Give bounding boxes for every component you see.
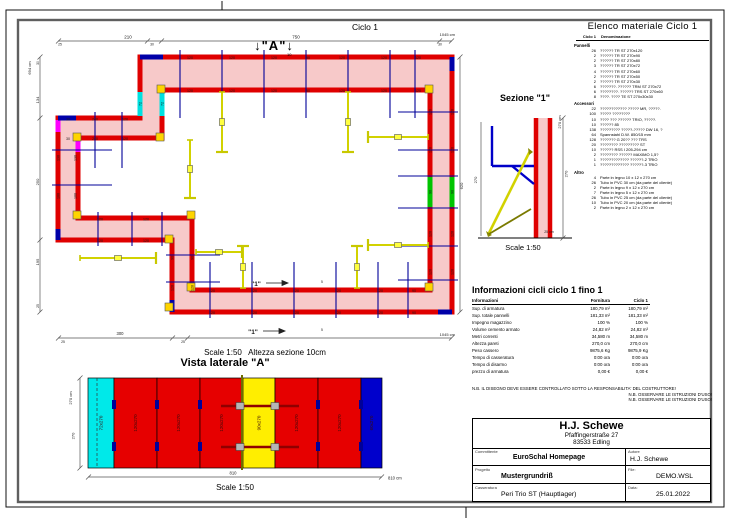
file-cell: File: DEMO.WSL	[625, 466, 711, 483]
side-view-panels: 72x270120x270120x270120x27090x270120x270…	[88, 378, 382, 468]
plan-label: 72	[139, 102, 143, 106]
push-pull-prop	[342, 92, 354, 152]
plan-label: 90	[412, 289, 416, 293]
cycle-info-row: Sup. totale pannelli181,33 m²181,33 m²	[472, 312, 650, 319]
side-view-panel: 120x270	[318, 378, 361, 468]
plan-label: 90	[451, 190, 455, 194]
plan-label: 130	[74, 155, 78, 161]
side-view-label: 810	[230, 471, 238, 476]
plan-label: 130	[57, 155, 61, 161]
plan-label: 90	[171, 256, 175, 260]
plan-label: 120	[97, 218, 103, 222]
cycle-info-title: Informazioni cicli ciclo 1 fino 1	[472, 285, 650, 295]
panel-size-label: 120x270	[219, 414, 224, 432]
cycle-info-cell: 100 %	[610, 319, 648, 326]
push-pull-prop	[351, 246, 363, 288]
section-push-pull-prop	[489, 151, 530, 233]
plan-label: 120	[335, 311, 341, 315]
side-view-panel: 90x270	[243, 378, 275, 468]
data-cell: Data: 25.01.2022	[625, 484, 711, 502]
prop-coupler	[115, 256, 122, 261]
section-label: 270 cm	[557, 115, 562, 129]
company-address-2: 83533 Edling	[473, 439, 710, 446]
plan-label: 240	[92, 118, 98, 122]
tie-plate	[359, 442, 363, 451]
note-line-3: N.B. OSSERVARE LE ISTRUZIONI D'USO!	[472, 397, 712, 403]
plan-label: 1045 cm	[440, 32, 456, 37]
plan-label: 90	[412, 311, 416, 315]
cycle-info-row: Volume cemento armato24,82 m³24,82 m³	[472, 326, 650, 333]
plan-label: 120	[143, 239, 149, 243]
tie-plate	[155, 400, 159, 409]
plan-label: 25	[58, 43, 62, 47]
push-pull-prop	[184, 140, 196, 198]
prop-coupler	[346, 119, 351, 126]
tie-plate	[316, 400, 320, 409]
side-view-label: 810 cm	[388, 476, 402, 481]
plan-label: 120	[451, 109, 455, 115]
panel-size-label: 120x270	[133, 414, 138, 432]
prop-coupler	[188, 166, 193, 173]
material-item: 2Parte in legno 2 x 12 x 270 cm	[576, 205, 709, 210]
cycle-info-cell: 270,0 cm	[610, 340, 648, 347]
file-value: DEMO.WSL	[656, 473, 693, 480]
section-label: 270	[564, 170, 569, 177]
tie-plate	[316, 442, 320, 451]
side-view-panel: 120x270	[275, 378, 318, 468]
side-view-panel: 120x270	[157, 378, 200, 468]
plan-label: 120	[339, 89, 345, 93]
cycle-info-h2: Ciclo 1	[610, 297, 648, 304]
cycle-info-cell: 100 %	[568, 319, 610, 326]
cycle-info-cell: 181,33 m²	[568, 312, 610, 319]
plan-special-panels	[58, 57, 452, 312]
plan-label: 120	[429, 231, 433, 237]
plan-outer-formwork	[58, 57, 452, 312]
title-block-row-committente: Committente EuroSchal Homepage Autore H.…	[473, 448, 710, 466]
push-pull-prop	[196, 246, 242, 258]
cycle-info-cell: 0:00 ora	[610, 354, 648, 361]
tie-plate	[155, 442, 159, 451]
notes: N.B. IL DISEGNO DEVE ESSERE CONTROLLATO …	[472, 386, 712, 403]
cycle-info-cell: Peso cassero	[472, 347, 568, 354]
material-item: 1????????????? ??????-3 TRIO	[576, 162, 709, 167]
plan-label: 5	[321, 280, 323, 284]
cycle-info-cell: 24,82 m³	[568, 326, 610, 333]
plan-scale-note: Scale 1:50 Altezza sezione 10cm	[150, 348, 380, 357]
autore-cell: Autore H.J. Schewe	[625, 448, 711, 465]
plan-label: 120	[451, 147, 455, 153]
cycle-info-row: Peso cassero9875,6 Kg9875,9 Kg	[472, 347, 650, 354]
plan-label: 620	[459, 182, 464, 189]
plan-label: 134	[35, 96, 40, 103]
side-view-panel: 72x270	[88, 378, 114, 468]
plan-label: 120	[339, 56, 345, 60]
progetto-value: Mustergrundriß	[501, 473, 553, 480]
cycle-info-cell: 181,33 m²	[610, 312, 648, 319]
plan-label: 30	[36, 61, 40, 65]
push-pull-prop	[368, 239, 428, 251]
cycle-info-cell: 0,00 €	[568, 368, 610, 375]
prop-coupler	[241, 264, 246, 271]
plan-label: 120	[429, 109, 433, 115]
plan-label: 120	[451, 269, 455, 275]
plan-label: 120	[293, 311, 299, 315]
plan-label: 120	[429, 147, 433, 153]
plan-label: 120	[335, 289, 341, 293]
plan-label: "1"	[248, 329, 258, 336]
cycle-info-cell: Impegno magazzino	[472, 319, 568, 326]
side-view: 72x270120x270120x270120x27090x270120x270…	[68, 375, 402, 481]
plan-label: 120	[187, 56, 193, 60]
plan-label: 90	[429, 190, 433, 194]
plan-label: 120	[415, 56, 421, 60]
plan-label: 120	[191, 285, 195, 291]
panel-size-label: 120x270	[337, 414, 342, 432]
plan-label: 100	[74, 193, 78, 199]
plan-label: 25	[36, 304, 40, 308]
cycle-info-cell: Metri correnti	[472, 333, 568, 340]
cycle-info-h1: Fornitura	[568, 297, 610, 304]
cycle-info-row: Metri correnti34,580 m34,580 m	[472, 333, 650, 340]
title-block: H.J. Schewe Pfaffingerstraße 27 83533 Ed…	[472, 418, 711, 502]
view-marker-a: ↓"A"↓	[246, 38, 302, 53]
material-list-body: Pannelli26?????? TR ST 270x1202?????? TR…	[576, 43, 709, 210]
push-pull-prop	[368, 131, 428, 143]
drawing-sheet: { "page": { "plan_title": "Ciclo 1", "ma…	[0, 0, 730, 519]
cycle-info-row: Tempo di casseratura0:00 ora0:00 ora	[472, 354, 650, 361]
cycle-info-cell: prezzo di armatura	[472, 368, 568, 375]
prop-coupler	[355, 264, 360, 271]
plan-label: 30	[66, 137, 70, 141]
plan-title: Ciclo 1	[305, 22, 425, 32]
panel-size-label: 60x270	[369, 415, 374, 430]
plan-label: 120	[429, 269, 433, 275]
autore-label: Autore	[628, 449, 640, 454]
plan-label: 120	[251, 289, 257, 293]
progetto-label: Progetto	[475, 467, 490, 472]
plan-label: 72	[161, 102, 165, 106]
plan-label: "1"	[251, 281, 261, 288]
plan-label: 90	[191, 256, 195, 260]
plan-label: 90	[306, 89, 310, 93]
section-scale: Scale 1:50	[486, 243, 560, 252]
panel-size-label: 72x270	[99, 415, 104, 430]
panel-size-label: 120x270	[176, 414, 181, 432]
plan-label: 120	[143, 218, 149, 222]
material-col-ciclo: Ciclo 1	[576, 34, 596, 39]
side-view-panel: 60x270	[361, 378, 382, 468]
title-block-row-casseratura: Casseratura Peri Trio ST (Hauptlager) Da…	[473, 484, 710, 502]
plan-label: 25	[61, 340, 65, 344]
plan-label: 120	[97, 239, 103, 243]
cycle-info-cell: Tempo di disarmo	[472, 361, 568, 368]
cycle-info-cell: 180,79 m²	[610, 305, 648, 312]
side-view-panel: 120x270	[114, 378, 157, 468]
plan-label: 120	[171, 285, 175, 291]
data-value: 25.01.2022	[656, 491, 690, 498]
view-marker-a-sub: 10	[287, 52, 291, 57]
prop-coupler	[216, 250, 223, 255]
title-block-company-cell: H.J. Schewe Pfaffingerstraße 27 83533 Ed…	[473, 419, 710, 449]
cycle-info-row: prezzo di armatura0,00 €0,00 €	[472, 368, 650, 375]
push-pull-prop	[80, 252, 156, 264]
cycle-info-cell: 0,00 €	[610, 368, 648, 375]
material-item-desc: Parte in legno 2 x 12 x 270 cm	[600, 205, 654, 210]
data-label: Data:	[628, 485, 638, 490]
title-block-row-progetto: Progetto Mustergrundriß File: DEMO.WSL	[473, 466, 710, 484]
company-name: H.J. Schewe	[473, 419, 710, 432]
cycle-info-cell: 24,82 m³	[610, 326, 648, 333]
plan-label: 120	[377, 311, 383, 315]
plan-label: 120	[293, 289, 299, 293]
cycle-info-cell: 9875,6 Kg	[568, 347, 610, 354]
tie-plate	[198, 442, 202, 451]
prop-coupler	[395, 243, 402, 248]
material-list-title: Elenco materiale Ciclo 1	[576, 21, 709, 32]
cycle-info: Informazioni cicli ciclo 1 fino 1 Inform…	[472, 285, 650, 375]
material-list-header: Ciclo 1 Denominazione	[576, 34, 709, 41]
tie-plate	[198, 400, 202, 409]
plan-label: 694 cm	[27, 61, 32, 75]
plan-label: 210	[124, 35, 132, 40]
section-view: 270270 cm27025 cm	[473, 115, 572, 241]
casseratura-label: Casseratura	[475, 485, 497, 490]
plan-label: 90	[306, 56, 310, 60]
cycle-info-h0: Informazioni	[472, 297, 568, 304]
plan-label: 120	[381, 89, 387, 93]
plan-label: 120	[271, 56, 277, 60]
side-view-panel: 120x270	[200, 378, 243, 468]
plan-label: 120	[187, 89, 193, 93]
material-col-denominazione: Denominazione	[601, 34, 631, 39]
prop-coupler	[395, 135, 402, 140]
cycle-info-cell: Altezza pareti	[472, 340, 568, 347]
material-item-desc: ????????????? ??????-3 TRIO	[600, 162, 658, 167]
plan-label: 100	[57, 193, 61, 199]
plan-label: 30	[150, 43, 154, 47]
material-item-qty: 2	[576, 205, 596, 210]
plan-label: 120	[451, 231, 455, 237]
side-view-label: 270	[71, 432, 76, 439]
cycle-info-cell: 180,79 m²	[568, 305, 610, 312]
side-view-label: 270 cm	[68, 391, 73, 405]
material-item-desc: ????. ???? TE ST 270x30x30	[600, 94, 653, 99]
plan-label: 30	[438, 43, 442, 47]
sideview-scale: Scale 1:50	[160, 483, 310, 492]
plan-label: 120	[122, 118, 128, 122]
cycle-info-body: Sup. di armatura180,79 m²180,79 m²Sup. t…	[472, 305, 650, 375]
plan-label: 120	[209, 311, 215, 315]
panel-size-label: 90x270	[257, 415, 262, 430]
cycle-info-header: Informazioni Fornitura Ciclo 1	[472, 297, 650, 305]
cycle-info-cell: 9875,9 Kg	[610, 347, 648, 354]
tie-plate	[112, 442, 116, 451]
cycle-info-cell: 270,0 cm	[568, 340, 610, 347]
section-title: Sezione "1"	[478, 93, 572, 103]
plan-label: 1045 cm	[440, 332, 456, 337]
company-address-1: Pfaffingerstraße 27	[473, 432, 710, 439]
cycle-info-row: Tempo di disarmo0:00 ora0:00 ora	[472, 361, 650, 368]
cycle-info-row: Impegno magazzino100 %100 %	[472, 319, 650, 326]
plan-label: 120	[229, 89, 235, 93]
cycle-info-cell: Sup. di armatura	[472, 305, 568, 312]
plan-label: 120	[251, 311, 257, 315]
cycle-info-cell: 0:00 ora	[568, 354, 610, 361]
plan-wall-fill	[58, 57, 452, 312]
material-list: Elenco materiale Ciclo 1 Ciclo 1 Denomin…	[576, 21, 709, 210]
autore-value: H.J. Schewe	[630, 456, 668, 463]
cycle-info-cell: 0:00 ora	[568, 361, 610, 368]
plan-label: 120	[415, 89, 421, 93]
material-item: 8????. ???? TE ST 270x30x30	[576, 94, 709, 99]
sideview-title: Vista laterale "A"	[120, 357, 330, 369]
cycle-info-cell: Volume cemento armato	[472, 326, 568, 333]
plan-label: 240	[92, 137, 98, 141]
plan-label: 120	[271, 89, 277, 93]
section-label: 25 cm	[544, 230, 554, 234]
prop-coupler	[220, 119, 225, 126]
cycle-info-cell: 34,580 m	[568, 333, 610, 340]
plan-label: 25	[181, 340, 185, 344]
plan-label: 195	[35, 258, 40, 265]
plan-label: 30	[66, 118, 70, 122]
casseratura-value: Peri Trio ST (Hauptlager)	[501, 491, 576, 498]
cycle-info-cell: 34,580 m	[610, 333, 648, 340]
plan-label: 300	[117, 331, 125, 336]
plan-label: 120	[209, 289, 215, 293]
cycle-info-row: Sup. di armatura180,79 m²180,79 m²	[472, 305, 650, 312]
plan-view: 1201201209012012012012012012090120120120…	[27, 32, 464, 344]
section-label: 270	[473, 176, 478, 183]
cycle-info-cell: 0:00 ora	[610, 361, 648, 368]
plan-label: 120	[122, 137, 128, 141]
committente-value: EuroSchal Homepage	[473, 454, 625, 461]
plan-label: 120	[381, 56, 387, 60]
panel-size-label: 120x270	[294, 414, 299, 432]
plan-label: 250	[35, 178, 40, 185]
material-item-qty: 1	[576, 162, 596, 167]
push-pull-prop	[216, 92, 228, 152]
plan-label: 120	[377, 289, 383, 293]
cycle-info-cell: Tempo di casseratura	[472, 354, 568, 361]
cycle-info-row: Altezza pareti270,0 cm270,0 cm	[472, 340, 650, 347]
material-item-qty: 8	[576, 94, 596, 99]
plan-label: 5	[321, 328, 323, 332]
plan-label: 120	[229, 56, 235, 60]
tie-plate	[359, 400, 363, 409]
tie-plate	[112, 400, 116, 409]
file-label: File:	[628, 467, 636, 472]
cycle-info-cell: Sup. totale pannelli	[472, 312, 568, 319]
